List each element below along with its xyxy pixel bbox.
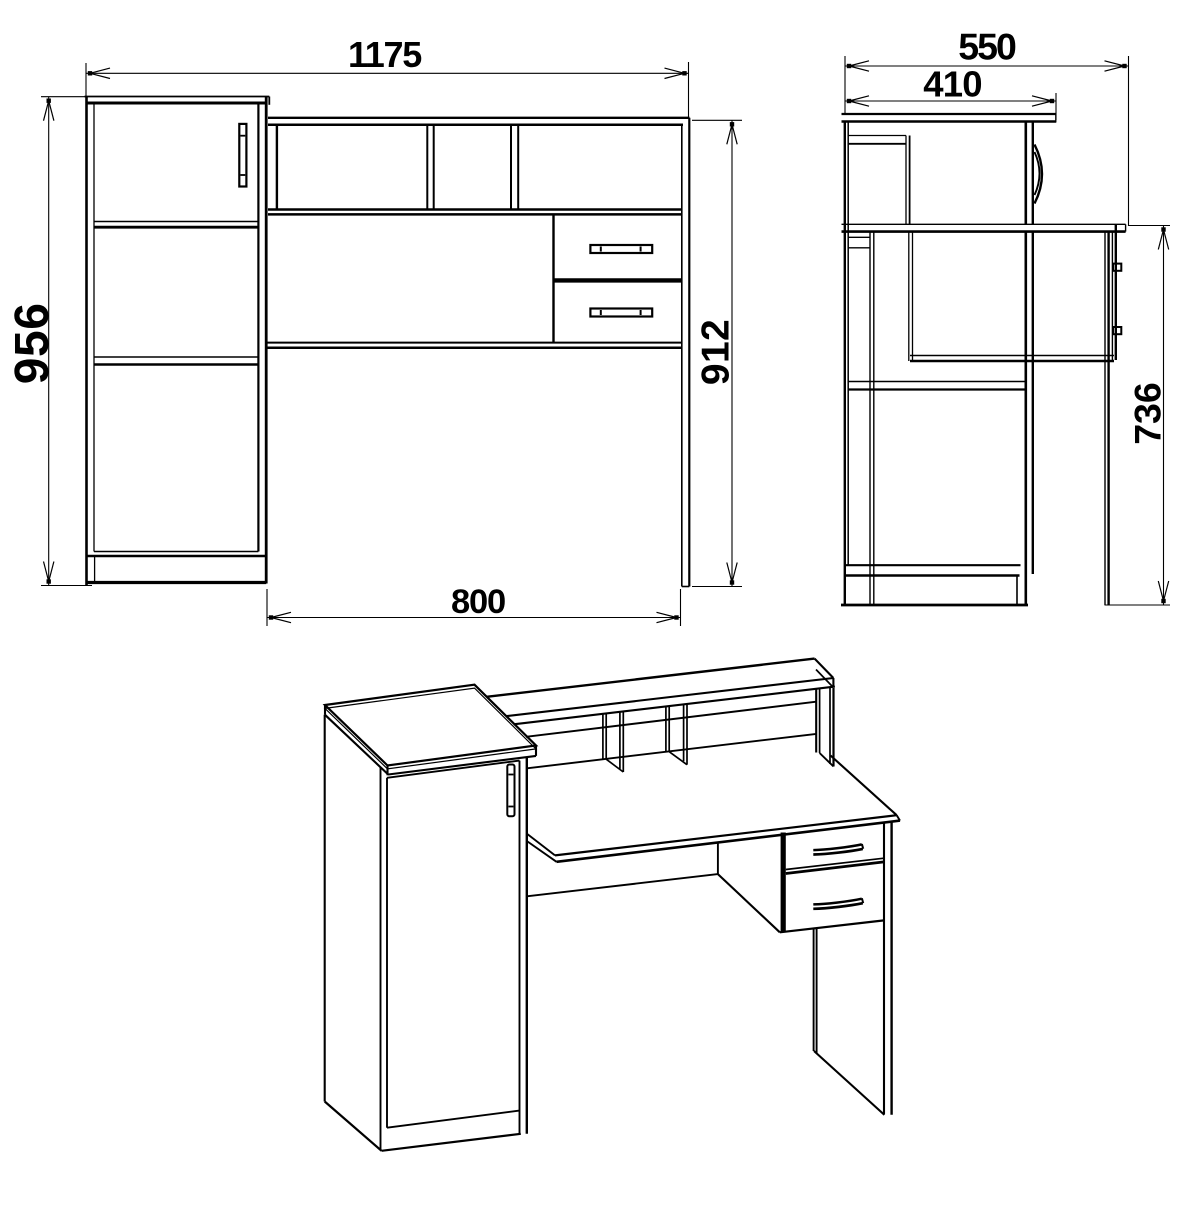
- svg-text:912: 912: [695, 319, 738, 385]
- svg-text:956: 956: [6, 303, 59, 385]
- svg-text:410: 410: [923, 63, 982, 104]
- svg-text:1175: 1175: [348, 34, 422, 75]
- svg-text:736: 736: [1127, 382, 1169, 445]
- svg-text:800: 800: [451, 583, 505, 621]
- svg-text:550: 550: [958, 26, 1016, 68]
